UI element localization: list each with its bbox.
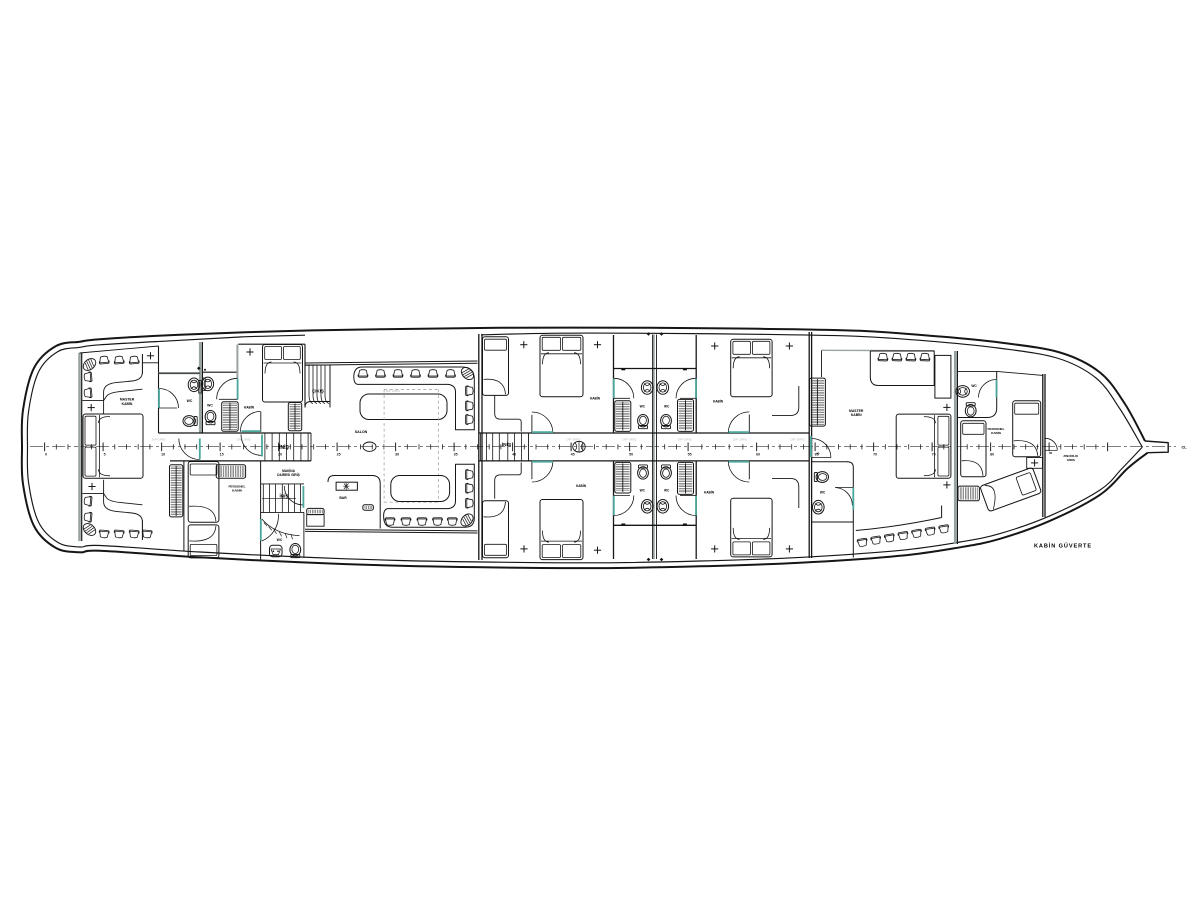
svg-text:45: 45 (1049, 451, 1053, 455)
svg-text:DİP GİRİŞ: DİP GİRİŞ (623, 437, 637, 442)
svg-text:WC: WC (971, 384, 977, 388)
svg-text:KABİN: KABİN (244, 406, 255, 410)
svg-text:DİP GİRİŞ: DİP GİRİŞ (566, 437, 580, 442)
svg-text:KABİN: KABİN (576, 484, 587, 488)
svg-text:50: 50 (629, 453, 633, 457)
svg-text:DAİRESİ GİRİŞ: DAİRESİ GİRİŞ (277, 473, 300, 477)
svg-text:WC: WC (820, 491, 826, 495)
svg-text:45: 45 (571, 453, 575, 457)
svg-text:SALON: SALON (355, 430, 368, 434)
svg-text:55: 55 (688, 453, 692, 457)
svg-text:KABİN: KABİN (713, 400, 724, 404)
svg-text:0: 0 (45, 453, 47, 457)
svg-text:60: 60 (756, 453, 760, 457)
svg-text:WC: WC (640, 405, 646, 409)
svg-text:DİP GİRİŞ: DİP GİRİŞ (790, 437, 804, 442)
svg-text:BAR: BAR (339, 496, 347, 500)
svg-text:KABİN GÜVERTE: KABİN GÜVERTE (1034, 542, 1092, 549)
svg-text:KABİN: KABİN (122, 402, 133, 406)
svg-text:10: 10 (161, 453, 165, 457)
svg-text:WC: WC (664, 405, 670, 409)
svg-text:KABİN: KABİN (232, 489, 243, 493)
svg-text:WC: WC (664, 489, 670, 493)
svg-text:70: 70 (873, 453, 877, 457)
svg-text:İNİŞ: İNİŞ (502, 441, 512, 448)
svg-text:WC: WC (640, 489, 646, 493)
svg-text:80: 80 (990, 453, 994, 457)
svg-text:35: 35 (454, 453, 458, 457)
svg-text:GİRİŞ: GİRİŞ (1067, 457, 1075, 462)
svg-text:İNİŞ: İNİŞ (279, 444, 289, 451)
svg-text:KABİN: KABİN (704, 491, 715, 495)
svg-text:DİP GİRİŞ: DİP GİRİŞ (386, 388, 400, 393)
svg-text:5: 5 (104, 453, 106, 457)
svg-text:45: 45 (816, 452, 820, 456)
svg-text:15: 15 (220, 453, 224, 457)
svg-text:KABİN: KABİN (851, 413, 862, 417)
svg-text:DİP GİRİŞ: DİP GİRİŞ (237, 437, 251, 442)
svg-text:WC: WC (187, 399, 193, 403)
svg-text:DİP GİRİŞ: DİP GİRİŞ (678, 437, 692, 442)
svg-text:MASTER: MASTER (849, 409, 864, 413)
svg-text:75: 75 (932, 453, 936, 457)
svg-text:25: 25 (337, 453, 341, 457)
svg-text:20: 20 (278, 453, 282, 457)
svg-text:WC: WC (207, 404, 213, 408)
svg-text:ZİNCİRLİK: ZİNCİRLİK (1063, 453, 1079, 458)
svg-text:ÇIKIŞ: ÇIKIŞ (312, 389, 324, 394)
svg-text:WC: WC (277, 538, 283, 542)
svg-text:KABİN: KABİN (991, 431, 1002, 435)
svg-text:CL: CL (1181, 446, 1187, 450)
svg-text:KABİN: KABİN (590, 397, 601, 401)
svg-text:DİP GİRİŞ: DİP GİRİŞ (733, 437, 747, 442)
svg-text:DİP GİRİŞ: DİP GİRİŞ (152, 437, 166, 442)
svg-text:30: 30 (395, 453, 399, 457)
